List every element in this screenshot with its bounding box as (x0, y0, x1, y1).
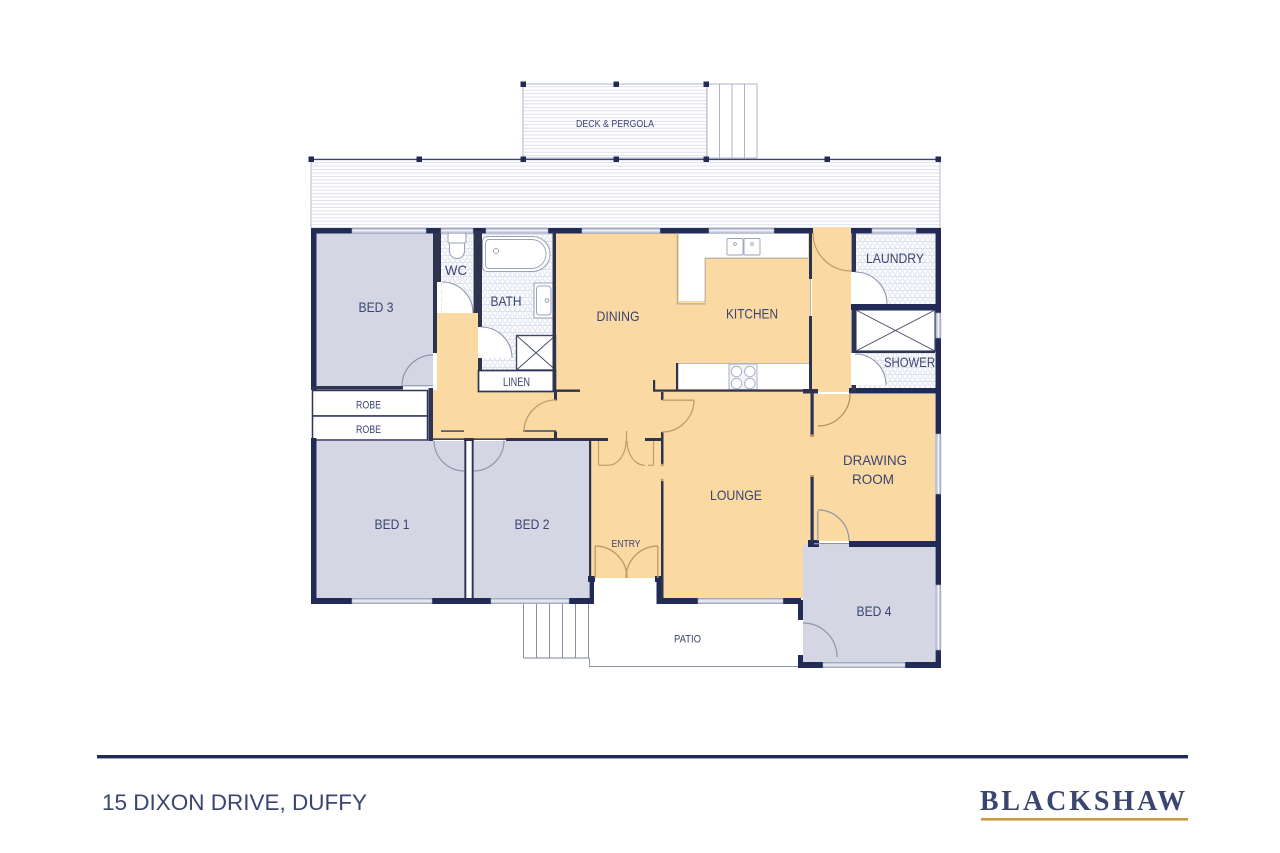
svg-text:DECK & PERGOLA: DECK & PERGOLA (576, 118, 654, 130)
svg-text:BED 1: BED 1 (375, 516, 410, 532)
svg-text:BED 3: BED 3 (359, 299, 394, 315)
svg-text:ROBE: ROBE (356, 400, 381, 412)
svg-text:ROOM: ROOM (852, 471, 894, 487)
svg-text:DINING: DINING (597, 308, 640, 324)
svg-text:ROBE: ROBE (356, 424, 381, 436)
svg-text:15 DIXON DRIVE, DUFFY: 15 DIXON DRIVE, DUFFY (102, 790, 367, 815)
svg-text:BED 2: BED 2 (515, 516, 550, 532)
svg-text:LOUNGE: LOUNGE (710, 487, 762, 503)
svg-text:PATIO: PATIO (674, 634, 701, 646)
svg-text:WC: WC (445, 262, 467, 278)
svg-text:ENTRY: ENTRY (612, 539, 641, 550)
svg-text:SHOWER: SHOWER (884, 354, 935, 370)
svg-text:LAUNDRY: LAUNDRY (866, 250, 925, 266)
svg-text:KITCHEN: KITCHEN (726, 306, 778, 322)
svg-text:DRAWING: DRAWING (843, 452, 907, 468)
svg-text:BED 4: BED 4 (857, 603, 892, 619)
svg-text:LINEN: LINEN (503, 377, 530, 389)
svg-text:BLACKSHAW: BLACKSHAW (980, 786, 1188, 817)
svg-text:BATH: BATH (491, 293, 522, 309)
